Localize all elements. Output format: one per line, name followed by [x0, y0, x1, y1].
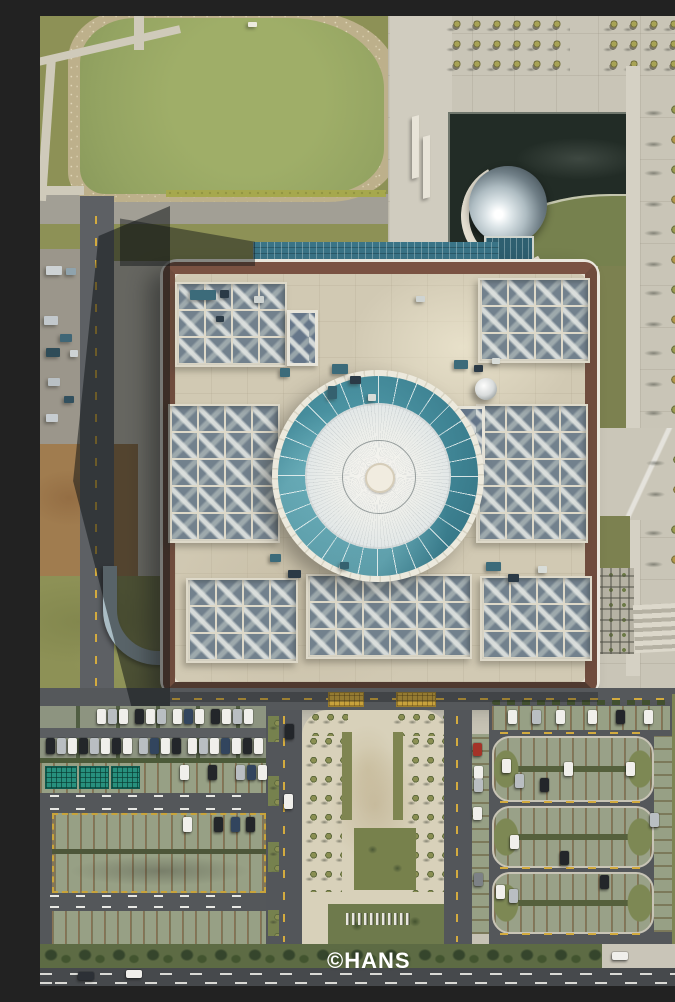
tire-smudge [70, 856, 250, 886]
curbside-stall-column [472, 734, 489, 934]
stall-row [40, 706, 266, 728]
walkway-stair-wedge [412, 115, 419, 179]
road-centerline [283, 716, 285, 942]
central-lawn-square [354, 828, 416, 890]
stall-row [492, 706, 670, 730]
aisle-marking [50, 906, 256, 908]
east-lawn-patch [596, 516, 630, 570]
parking-island [492, 872, 654, 934]
skylight-grid-south [306, 574, 472, 659]
road-verge [268, 716, 279, 742]
aisle-marking [50, 808, 256, 810]
east-plaza-trees [640, 444, 675, 516]
watermark: ©HANS [327, 948, 411, 974]
hedge-line [52, 849, 266, 854]
dome [272, 370, 484, 582]
lawn-strip [342, 732, 352, 820]
parking-island [492, 806, 654, 868]
plaza-south-lawn [328, 904, 444, 948]
park-path [134, 16, 144, 50]
stairs [633, 603, 675, 653]
building-shadow-south [170, 692, 598, 702]
plaza-tree-planters [445, 16, 570, 78]
aisle-marking [500, 933, 650, 935]
bike-rack-row [346, 913, 410, 925]
parking-island [492, 736, 654, 802]
teal-shelter [79, 766, 109, 789]
road-verge [268, 776, 279, 806]
teal-shelter [111, 766, 140, 789]
street-tree-hedge [40, 944, 602, 970]
roof-geodesic-ball [475, 378, 497, 400]
skylight-grid-ne [478, 278, 590, 363]
plaza-tree-grid-west [304, 734, 342, 892]
road-centerline [456, 716, 458, 942]
aisle-marking [500, 801, 650, 803]
aisle-marking [500, 867, 650, 869]
stall-row [40, 738, 266, 758]
skylight-grid-east [476, 404, 588, 543]
skylight-grid-se [480, 576, 592, 661]
park-path [40, 186, 84, 195]
green-roof-strip [596, 266, 626, 431]
plaza-east-road [444, 710, 472, 948]
skylight-grid-west [168, 404, 280, 543]
lawn-strip [393, 732, 403, 820]
aisle-marking [50, 895, 256, 897]
teal-shelter [45, 766, 77, 789]
stall-column-east [654, 736, 672, 932]
skylight-pair-north [287, 310, 318, 366]
skylight-grid-nw [175, 282, 287, 367]
dome-center-hub [365, 463, 395, 493]
lane-marking [40, 982, 675, 984]
road-verge [268, 842, 279, 872]
pond-edge-hedge [166, 190, 386, 197]
paver-stall-row [52, 911, 266, 946]
drive-aisle [40, 728, 266, 738]
aerial-photo: ©HANS [40, 16, 675, 986]
walkway-stair-wedge [423, 135, 430, 199]
sunken-block-garden [592, 568, 634, 654]
street-sidewalk [602, 944, 675, 970]
skylight-grid-sw [186, 578, 298, 663]
aisle-marking [50, 795, 256, 797]
pool-west-walkway [390, 16, 452, 248]
storage-yard [40, 249, 84, 444]
aisle-marking [500, 732, 650, 734]
road-verge [268, 910, 279, 936]
mirrored-sphere [469, 166, 547, 244]
